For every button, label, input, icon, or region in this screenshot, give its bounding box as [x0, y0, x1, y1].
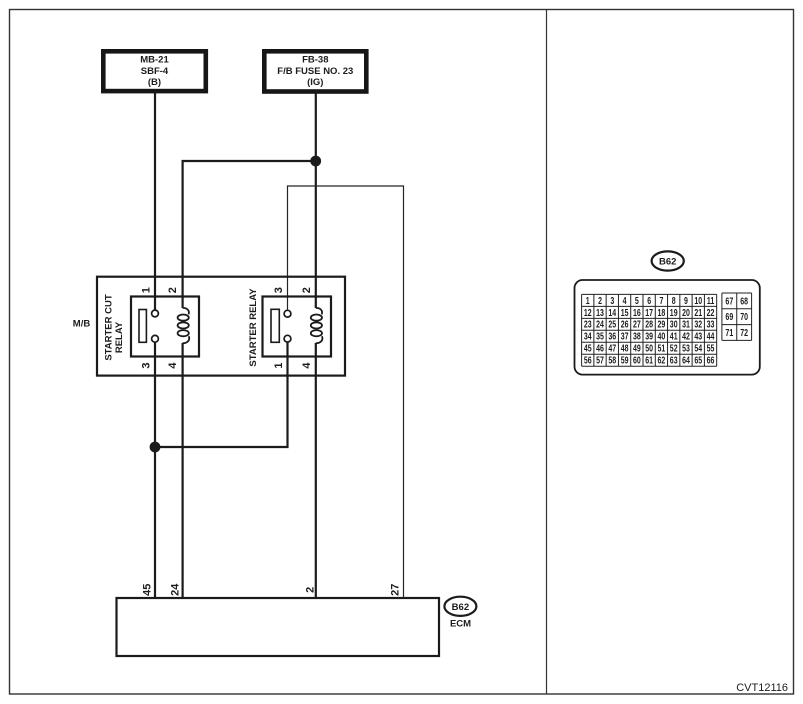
- svg-text:3: 3: [273, 287, 285, 293]
- svg-text:STARTER RELAY: STARTER RELAY: [248, 288, 259, 367]
- svg-text:62: 62: [658, 354, 666, 366]
- svg-text:22: 22: [707, 306, 715, 318]
- svg-text:32: 32: [694, 318, 702, 330]
- svg-text:57: 57: [596, 354, 604, 366]
- svg-text:F/B FUSE NO. 23: F/B FUSE NO. 23: [277, 66, 353, 77]
- svg-text:ECM: ECM: [450, 619, 471, 630]
- svg-text:6: 6: [647, 295, 651, 307]
- svg-text:55: 55: [707, 342, 715, 354]
- svg-text:36: 36: [608, 330, 616, 342]
- svg-text:1: 1: [586, 295, 590, 307]
- svg-text:31: 31: [682, 318, 690, 330]
- svg-text:58: 58: [608, 354, 616, 366]
- svg-text:59: 59: [621, 354, 629, 366]
- svg-text:46: 46: [596, 342, 604, 354]
- svg-text:23: 23: [584, 318, 592, 330]
- svg-text:40: 40: [658, 330, 666, 342]
- svg-text:2: 2: [301, 287, 313, 293]
- svg-text:18: 18: [658, 306, 666, 318]
- svg-text:34: 34: [584, 330, 592, 342]
- svg-text:3: 3: [610, 295, 614, 307]
- svg-text:1: 1: [140, 287, 152, 293]
- svg-text:FB-38: FB-38: [302, 54, 328, 65]
- svg-text:71: 71: [725, 327, 733, 339]
- svg-text:4: 4: [301, 362, 313, 369]
- svg-text:48: 48: [621, 342, 629, 354]
- svg-text:65: 65: [694, 354, 702, 366]
- svg-text:20: 20: [682, 306, 690, 318]
- svg-text:4: 4: [623, 295, 627, 307]
- svg-text:5: 5: [635, 295, 639, 307]
- svg-text:69: 69: [725, 311, 733, 323]
- svg-text:10: 10: [694, 295, 702, 307]
- svg-text:54: 54: [694, 342, 702, 354]
- svg-text:19: 19: [670, 306, 678, 318]
- svg-text:STARTER CUT: STARTER CUT: [104, 294, 115, 361]
- svg-text:49: 49: [633, 342, 641, 354]
- svg-text:24: 24: [596, 318, 604, 330]
- svg-text:33: 33: [707, 318, 715, 330]
- svg-text:67: 67: [725, 295, 733, 307]
- svg-text:MB-21: MB-21: [140, 54, 169, 65]
- svg-text:RELAY: RELAY: [114, 321, 125, 353]
- svg-text:27: 27: [633, 318, 641, 330]
- svg-text:68: 68: [740, 295, 748, 307]
- svg-text:38: 38: [633, 330, 641, 342]
- svg-text:21: 21: [694, 306, 702, 318]
- svg-text:2: 2: [305, 587, 317, 593]
- svg-text:43: 43: [694, 330, 702, 342]
- svg-text:15: 15: [621, 306, 629, 318]
- svg-text:39: 39: [645, 330, 653, 342]
- svg-text:7: 7: [659, 295, 663, 307]
- svg-text:4: 4: [167, 362, 179, 369]
- svg-text:25: 25: [608, 318, 616, 330]
- svg-text:50: 50: [645, 342, 653, 354]
- svg-text:SBF-4: SBF-4: [141, 66, 169, 77]
- svg-text:26: 26: [621, 318, 629, 330]
- svg-text:CVT12116: CVT12116: [736, 682, 788, 694]
- svg-text:45: 45: [142, 584, 154, 596]
- svg-text:35: 35: [596, 330, 604, 342]
- svg-text:B62: B62: [659, 257, 676, 268]
- svg-text:9: 9: [684, 295, 688, 307]
- svg-text:72: 72: [740, 327, 748, 339]
- svg-text:16: 16: [633, 306, 641, 318]
- svg-text:(IG): (IG): [307, 77, 323, 88]
- svg-text:41: 41: [670, 330, 678, 342]
- svg-text:63: 63: [670, 354, 678, 366]
- svg-text:14: 14: [608, 306, 616, 318]
- svg-text:51: 51: [658, 342, 666, 354]
- svg-text:13: 13: [596, 306, 604, 318]
- svg-text:70: 70: [740, 311, 748, 323]
- svg-text:2: 2: [167, 287, 179, 293]
- svg-text:61: 61: [645, 354, 653, 366]
- svg-text:42: 42: [682, 330, 690, 342]
- svg-text:28: 28: [645, 318, 653, 330]
- svg-text:1: 1: [273, 362, 285, 368]
- svg-text:52: 52: [670, 342, 678, 354]
- svg-text:27: 27: [390, 584, 402, 596]
- svg-text:B62: B62: [452, 602, 469, 613]
- svg-text:2: 2: [598, 295, 602, 307]
- svg-text:37: 37: [621, 330, 629, 342]
- svg-text:53: 53: [682, 342, 690, 354]
- svg-text:3: 3: [140, 362, 152, 368]
- svg-text:11: 11: [707, 295, 715, 307]
- svg-text:66: 66: [707, 354, 715, 366]
- svg-text:56: 56: [584, 354, 592, 366]
- svg-text:12: 12: [584, 306, 592, 318]
- svg-text:(B): (B): [148, 77, 161, 88]
- svg-text:24: 24: [170, 583, 182, 596]
- svg-text:17: 17: [645, 306, 653, 318]
- svg-text:60: 60: [633, 354, 641, 366]
- svg-text:29: 29: [658, 318, 666, 330]
- svg-text:47: 47: [608, 342, 616, 354]
- svg-text:64: 64: [682, 354, 690, 366]
- svg-text:30: 30: [670, 318, 678, 330]
- svg-text:45: 45: [584, 342, 592, 354]
- svg-text:M/B: M/B: [73, 319, 91, 330]
- svg-text:44: 44: [707, 330, 715, 342]
- svg-text:8: 8: [672, 295, 676, 307]
